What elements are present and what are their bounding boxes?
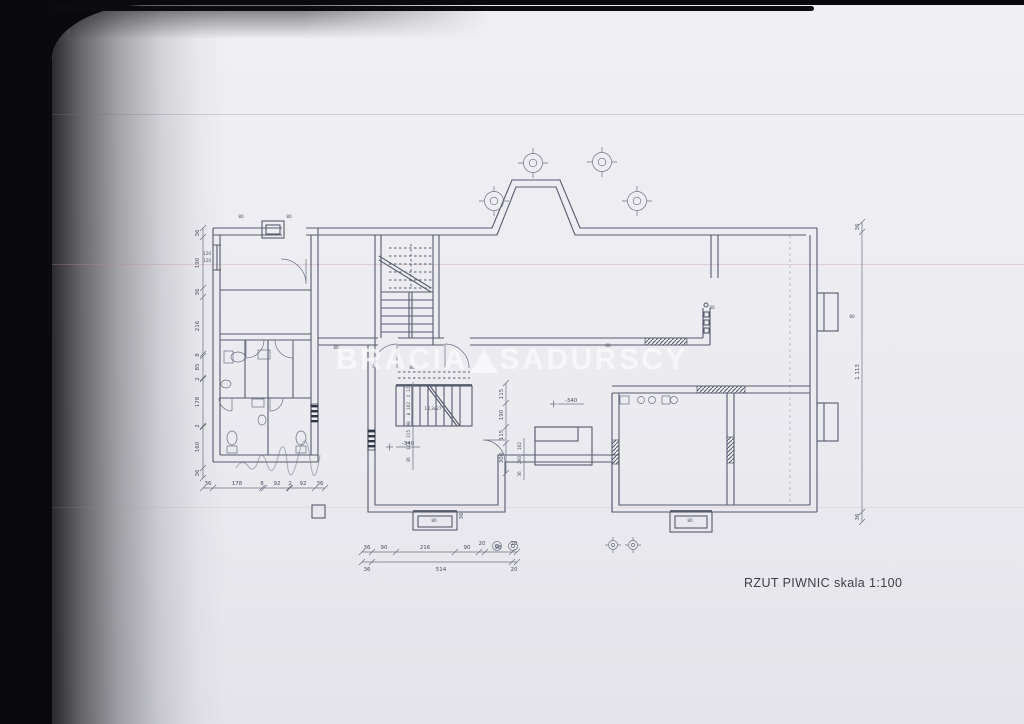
svg-text:102: 102	[406, 402, 411, 410]
svg-text:80: 80	[286, 214, 292, 219]
svg-text:92: 92	[274, 481, 281, 487]
svg-text:190: 190	[195, 257, 201, 268]
svg-text:102: 102	[517, 442, 522, 450]
dimension-chain-bottom-left: 36 178 8 92 2 92 36	[200, 481, 328, 491]
svg-text:123: 123	[406, 442, 411, 450]
level-mark-text: -340	[565, 398, 578, 404]
staircase-lower	[396, 372, 472, 426]
watermark-triangle-icon	[470, 350, 498, 373]
svg-text:36: 36	[317, 481, 324, 487]
svg-text:8: 8	[260, 481, 264, 487]
svg-text:2: 2	[195, 377, 201, 381]
dimension-chain-left: 36 190 36 216 8 85 2 178 2 160 36 120 12…	[195, 225, 211, 481]
svg-text:90: 90	[381, 545, 388, 551]
agency-watermark: BRACIA SADURSCY	[336, 343, 688, 377]
svg-text:80: 80	[431, 518, 437, 523]
svg-text:36: 36	[855, 223, 861, 230]
svg-text:80: 80	[849, 314, 855, 319]
svg-text:2: 2	[406, 394, 411, 397]
svg-text:20: 20	[479, 541, 486, 547]
scanned-page-photo: -340 -340 18,3x27 36 190 36 216 8 85 2 1…	[0, 0, 1024, 724]
window-size-label: 120	[203, 258, 211, 263]
svg-text:80: 80	[687, 518, 693, 523]
svg-text:8: 8	[195, 353, 201, 357]
svg-text:216: 216	[195, 320, 201, 331]
svg-text:98: 98	[406, 421, 411, 427]
staircase-upper	[379, 244, 433, 338]
window-wells	[312, 293, 838, 532]
utility-fixtures	[620, 396, 678, 404]
svg-text:36: 36	[855, 513, 861, 520]
svg-text:92: 92	[300, 481, 307, 487]
svg-text:85: 85	[195, 363, 201, 370]
svg-text:300: 300	[499, 452, 505, 463]
svg-text:178: 178	[195, 396, 201, 407]
svg-text:2: 2	[195, 424, 201, 428]
svg-text:36: 36	[195, 229, 201, 236]
svg-text:36: 36	[195, 288, 201, 295]
level-markers: -340 -340 18,3x27	[386, 398, 584, 451]
svg-text:98: 98	[495, 545, 502, 551]
svg-text:115: 115	[499, 429, 505, 440]
svg-text:36: 36	[517, 471, 522, 477]
svg-text:20: 20	[511, 541, 518, 547]
svg-text:216: 216	[420, 545, 431, 551]
svg-text:80: 80	[238, 214, 244, 219]
handwriting-scribble	[236, 441, 320, 476]
svg-text:2: 2	[288, 481, 292, 487]
dimension-chain-right: 36 1 113 36	[855, 219, 865, 525]
svg-text:36: 36	[459, 512, 465, 519]
svg-text:36: 36	[195, 469, 201, 476]
svg-text:178: 178	[232, 481, 243, 487]
svg-text:36: 36	[406, 457, 411, 463]
svg-text:8: 8	[406, 412, 411, 415]
svg-text:115: 115	[499, 388, 505, 399]
svg-text:1 113: 1 113	[855, 364, 861, 380]
window-size-label: 120	[203, 251, 211, 256]
svg-text:90: 90	[464, 545, 471, 551]
stair-note-text: 18,3x27	[424, 406, 441, 411]
svg-text:20: 20	[511, 567, 518, 573]
watermark-text-left: BRACIA	[336, 343, 468, 377]
svg-text:190: 190	[499, 409, 505, 420]
svg-text:80: 80	[709, 305, 715, 310]
watermark-text-right: SADURSCY	[500, 343, 688, 377]
svg-text:120: 120	[406, 384, 411, 392]
svg-text:115: 115	[406, 430, 411, 438]
svg-text:514: 514	[436, 567, 447, 573]
drawing-title-caption: RZUT PIWNIC skala 1:100	[744, 576, 902, 590]
dimension-chain-bottom-center: 36 90 216 90 20 98 20 36 514 20	[359, 541, 520, 573]
dimension-chain-corridor-2: 102 260 36	[517, 438, 524, 480]
svg-text:160: 160	[195, 441, 201, 452]
svg-text:260: 260	[517, 456, 522, 464]
svg-text:36: 36	[364, 567, 371, 573]
svg-text:36: 36	[364, 545, 371, 551]
svg-text:36: 36	[205, 481, 212, 487]
